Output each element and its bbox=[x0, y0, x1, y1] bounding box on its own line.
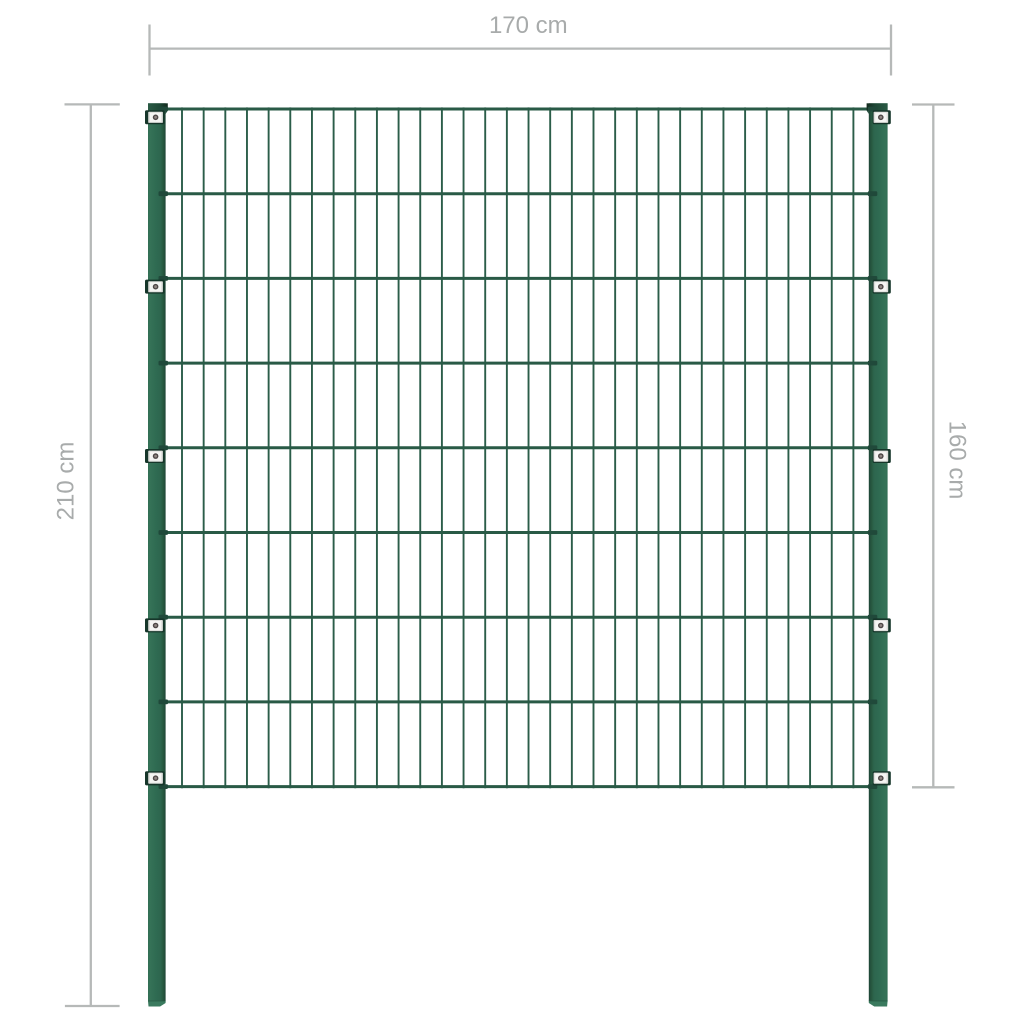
svg-text:160 cm: 160 cm bbox=[944, 421, 971, 500]
svg-text:210 cm: 210 cm bbox=[52, 442, 79, 521]
svg-text:170 cm: 170 cm bbox=[489, 12, 568, 39]
